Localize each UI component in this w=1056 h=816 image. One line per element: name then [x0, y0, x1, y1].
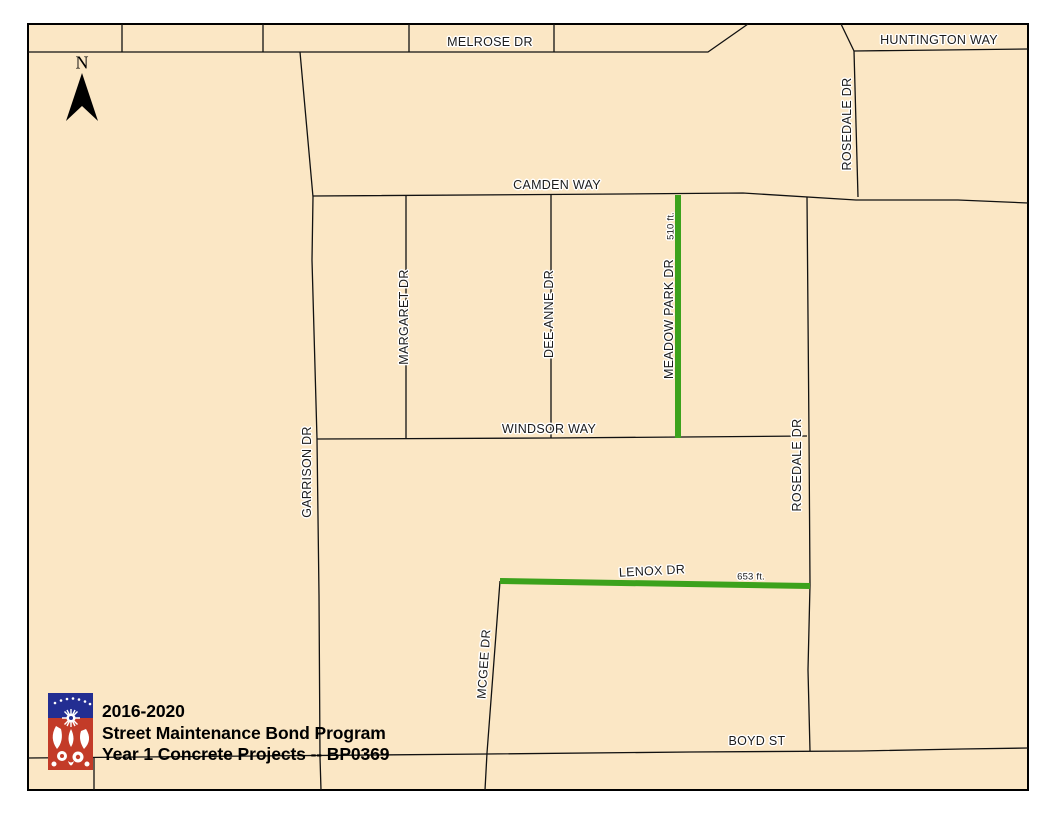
map-canvas: N MELROSE DR HUNTINGTON WAY ROSEDALE DR … [0, 0, 1056, 816]
map-title-program: Street Maintenance Bond Program [102, 723, 389, 745]
map-title-block: 2016-2020 Street Maintenance Bond Progra… [102, 701, 389, 766]
street-label-margaret-dr: MARGARET DR [397, 269, 411, 364]
street-label-huntington-way: HUNTINGTON WAY [880, 33, 998, 47]
distance-label-510-ft: 510 ft. [666, 212, 677, 240]
map-frame [28, 24, 1028, 790]
north-label: N [76, 53, 89, 74]
distance-label-653-ft: 653 ft. [737, 572, 765, 583]
street-label-windsor-way: WINDSOR WAY [502, 422, 596, 436]
city-logo [48, 693, 93, 770]
street-map [0, 0, 1056, 816]
street-label-camden-way: CAMDEN WAY [513, 178, 601, 192]
street-label-dee-anne-dr: DEE ANNE DR [542, 270, 556, 358]
street-label-boyd-st: BOYD ST [729, 734, 786, 748]
street-label-rosedale-dr-upper: ROSEDALE DR [840, 78, 854, 171]
street-label-meadow-park-dr: MEADOW PARK DR [662, 259, 676, 379]
street-label-garrison-dr: GARRISON DR [300, 426, 314, 518]
street-label-melrose-dr: MELROSE DR [447, 35, 533, 49]
map-title-years: 2016-2020 [102, 701, 389, 723]
street-label-rosedale-dr-lower: ROSEDALE DR [790, 419, 804, 512]
logo-sunburst [62, 709, 80, 727]
map-title-project: Year 1 Concrete Projects -- BP0369 [102, 744, 389, 766]
